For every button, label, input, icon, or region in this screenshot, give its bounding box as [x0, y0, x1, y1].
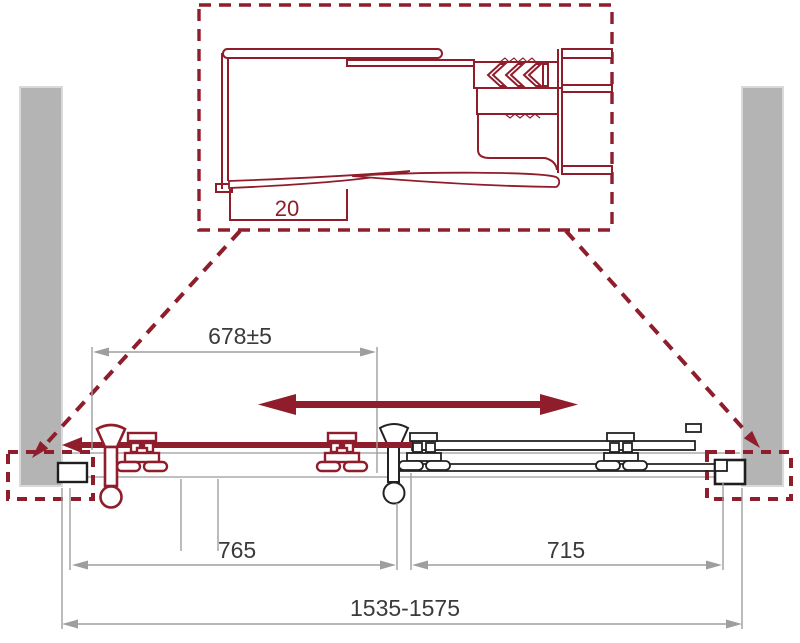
shower-door-schematic: 20 — [0, 0, 800, 643]
right-wall — [742, 87, 783, 486]
left-wall-profile — [58, 463, 87, 482]
dimension-total-range: 1535-1575 — [62, 488, 742, 629]
top-track-bar — [412, 441, 695, 450]
dim-right-label: 715 — [547, 537, 585, 563]
dim-total-label: 1535-1575 — [350, 595, 460, 621]
dim-left-label: 765 — [218, 537, 256, 563]
slide-direction-arrow-icon — [258, 394, 578, 415]
detail-callout-right — [566, 231, 760, 448]
detail-frame — [199, 5, 612, 230]
detail-view: 20 — [199, 5, 612, 230]
technical-drawing-page: 20 — [0, 0, 800, 643]
sliding-door-roller — [117, 433, 167, 471]
left-wall — [20, 87, 62, 486]
dimension-right-715: 715 — [411, 473, 723, 570]
sliding-door-assembly — [62, 425, 412, 508]
dim-top-label: 678±5 — [208, 323, 272, 349]
detail-dimension-label: 20 — [275, 196, 299, 221]
sliding-door-roller — [317, 433, 367, 471]
